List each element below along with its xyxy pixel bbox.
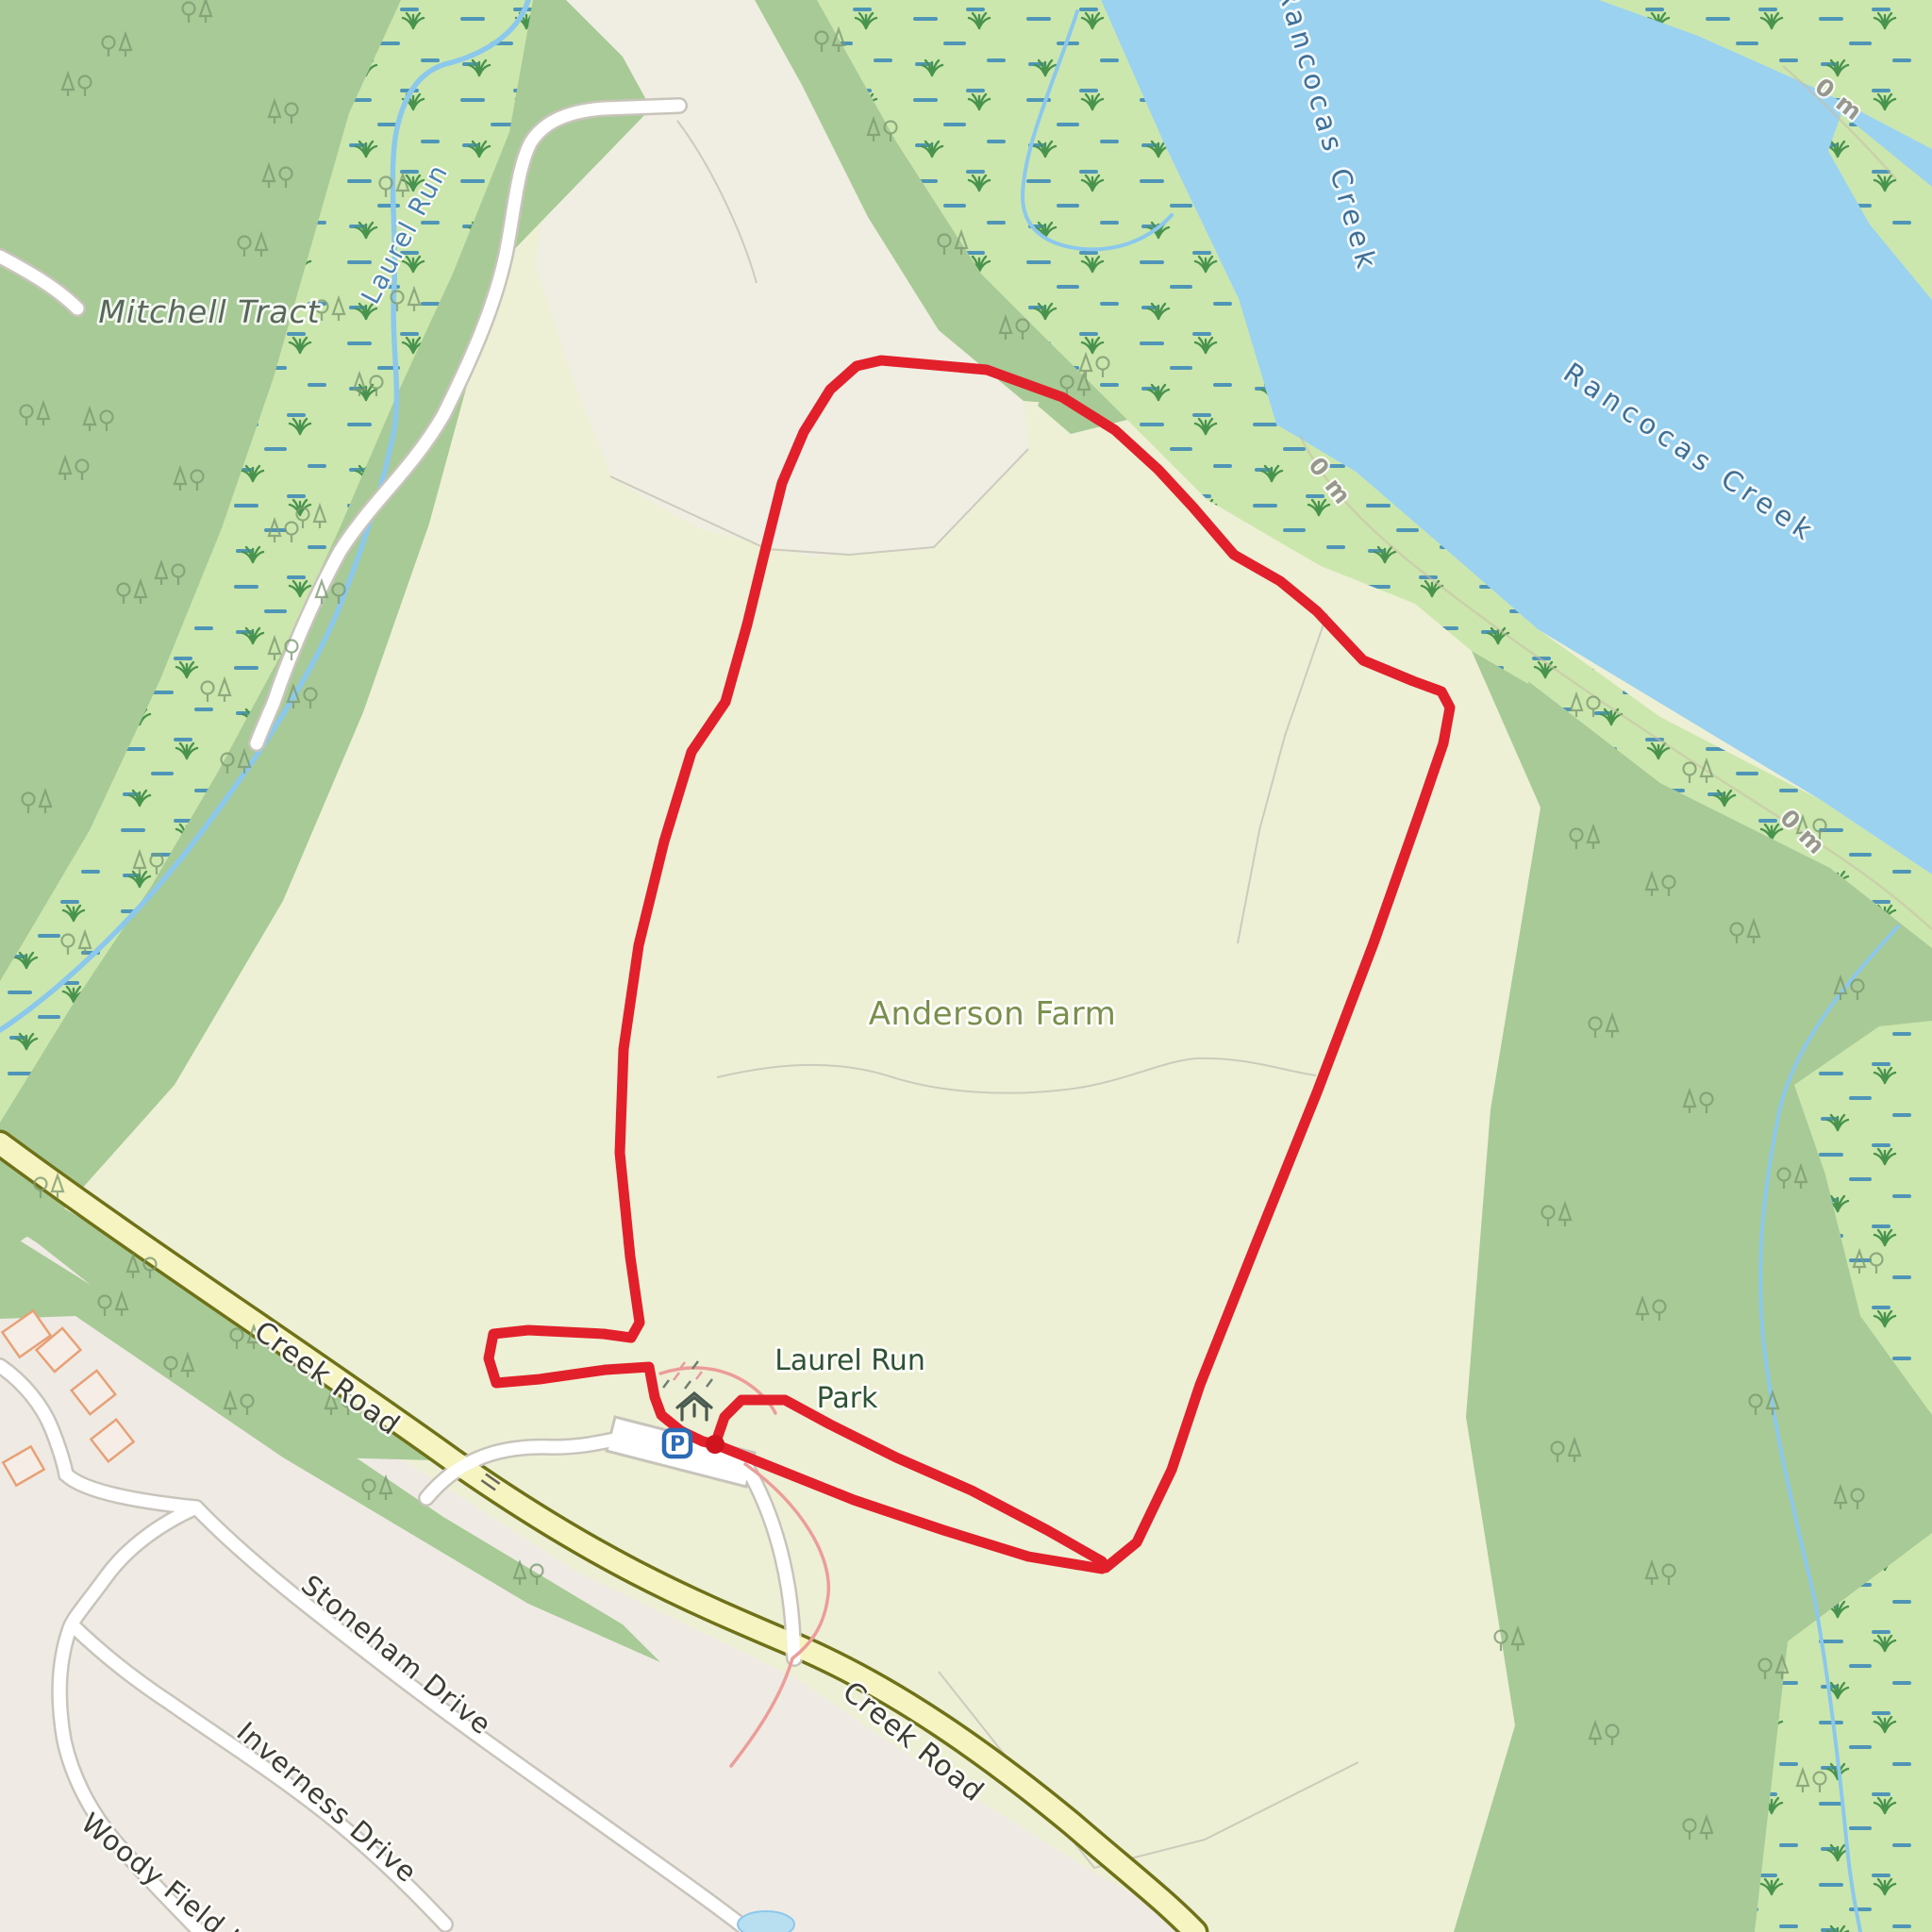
map-viewport[interactable]: PMitchell TractLaurel RunRancocas CreekR… [0, 0, 1932, 1932]
gps-track-start-dot[interactable] [706, 1435, 724, 1454]
parking-icon: P [664, 1430, 691, 1457]
label-mitchell-tract: Mitchell Tract [98, 293, 320, 330]
label-laurel-run-park-2: Park [817, 1382, 878, 1415]
label-anderson-farm: Anderson Farm [869, 995, 1116, 1033]
label-laurel-run-park-1: Laurel Run [774, 1344, 925, 1377]
parking-icon-letter: P [670, 1433, 685, 1457]
map-canvas[interactable]: PMitchell TractLaurel RunRancocas CreekR… [0, 0, 1932, 1932]
pool-icon [738, 1911, 794, 1932]
